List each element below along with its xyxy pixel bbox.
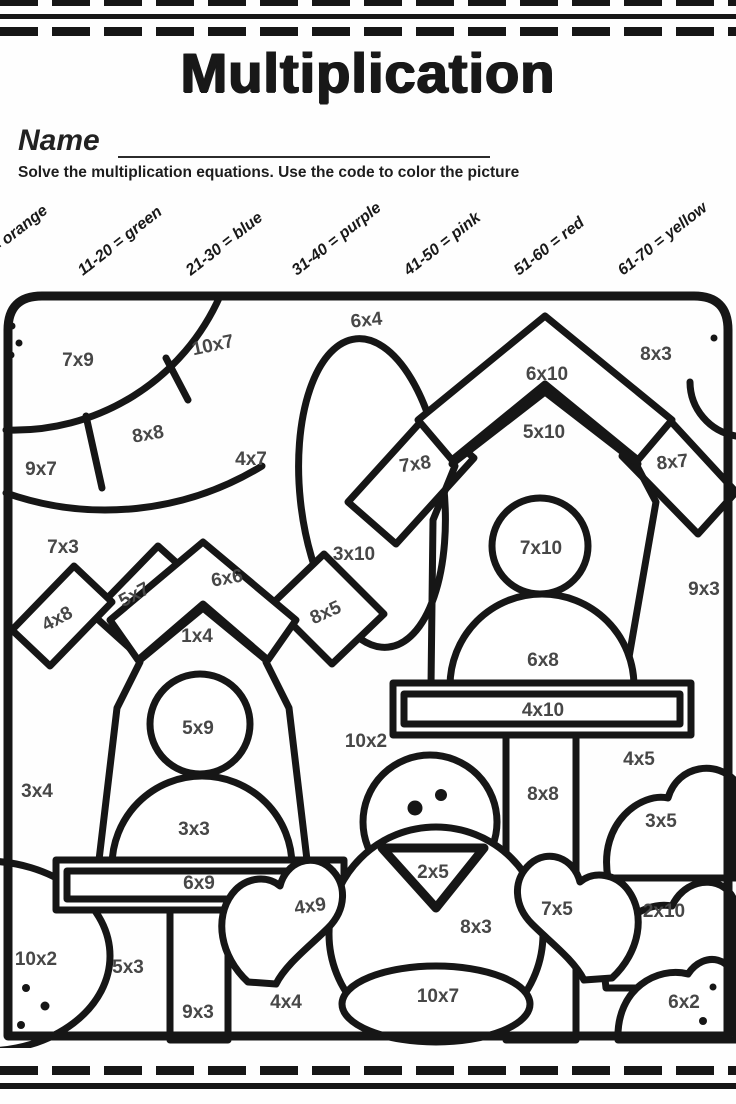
equation-label: 8x8	[527, 784, 559, 805]
equation-label: 4x4	[270, 992, 302, 1013]
equation-label: 7x10	[520, 538, 562, 559]
equation-label: 1x4	[181, 626, 213, 647]
equation-label: 7x3	[47, 537, 79, 558]
color-code-blue: 21-30 = blue	[183, 209, 267, 280]
name-row: Name	[18, 124, 718, 164]
birdhouse-left	[12, 542, 384, 866]
equation-label: 8x3	[460, 917, 492, 938]
color-code-yellow: 61-70 = yellow	[615, 199, 711, 280]
color-code-red: 51-60 = red	[511, 214, 588, 280]
equation-label: 4x10	[522, 700, 564, 721]
equation-label: 9x3	[688, 579, 720, 600]
equation-label: 9x3	[182, 1002, 214, 1023]
arch	[450, 594, 634, 686]
equation-label: 6x2	[668, 992, 700, 1013]
color-code-purple: 31-40 = purple	[289, 199, 385, 280]
top-dashed-line	[0, 27, 736, 36]
equation-label: 4x9	[293, 894, 327, 919]
bottom-solid-line	[0, 1083, 736, 1089]
equation-label: 10x7	[417, 986, 459, 1007]
equation-label: 3x4	[21, 781, 53, 802]
equation-label: 7x8	[398, 452, 432, 477]
top-edge-dashes	[0, 0, 736, 6]
equation-label: 6x4	[350, 308, 384, 332]
color-code-pink: 41-50 = pink	[401, 209, 485, 280]
equation-label: 6x10	[526, 364, 568, 385]
equation-label: 10x2	[345, 731, 387, 752]
equation-label: 5x3	[112, 957, 144, 978]
equation-label: 3x3	[178, 819, 210, 840]
color-code-orange: 1-10 = orange	[0, 202, 52, 280]
bird-eye-right	[435, 789, 447, 801]
equation-label: 5x9	[182, 718, 214, 739]
worksheet-page: Multiplication Name Solve the multiplica…	[0, 0, 736, 1104]
instructions-text: Solve the multiplication equations. Use …	[18, 164, 728, 182]
equation-label: 4x7	[235, 449, 267, 470]
equation-label: 6x9	[183, 873, 215, 894]
equation-label: 7x5	[541, 899, 573, 920]
name-label: Name	[18, 124, 100, 157]
equation-label: 3x5	[645, 811, 677, 832]
equation-label: 8x7	[656, 450, 690, 474]
equation-label: 4x5	[623, 749, 655, 770]
color-code-green: 11-20 = green	[75, 203, 166, 280]
equation-label: 5x10	[523, 422, 565, 443]
page-title: Multiplication	[0, 40, 736, 105]
equation-label: 10x2	[15, 949, 57, 970]
bird-eye-left	[408, 801, 423, 816]
coloring-picture: 7x9 10x7 6x4 8x3 6x10 8x8 4x7 7x8 9x7 5x…	[0, 288, 736, 1048]
equation-label: 7x9	[62, 350, 94, 371]
equation-label: 9x7	[25, 459, 57, 480]
equation-label: 8x3	[640, 344, 672, 365]
bottom-dashed-line	[0, 1066, 736, 1075]
equation-label: 8x8	[131, 421, 166, 447]
name-blank-line	[118, 156, 490, 158]
equation-label: 2x5	[417, 862, 449, 883]
equation-label: 2x10	[643, 901, 685, 922]
equation-label: 6x8	[527, 650, 559, 671]
top-solid-line	[0, 14, 736, 19]
equation-label: 3x10	[333, 544, 375, 565]
